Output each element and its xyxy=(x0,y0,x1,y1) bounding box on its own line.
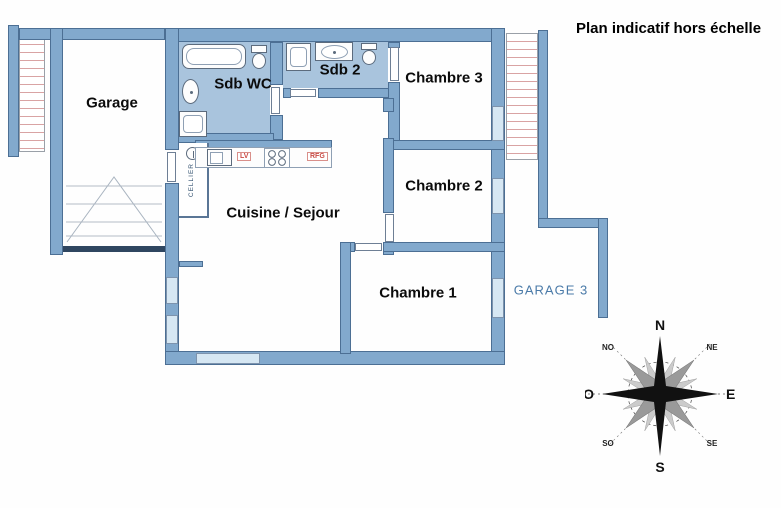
wall-segment xyxy=(318,88,395,98)
sdb-wc-label: Sdb WC xyxy=(214,76,272,93)
garage-door-line xyxy=(63,246,165,252)
washbasin-icon xyxy=(315,42,353,61)
wall-segment xyxy=(538,30,548,220)
compass-se-label: SE xyxy=(707,439,718,448)
compass-rose: N S E O NO NE SO SE xyxy=(585,312,735,480)
window xyxy=(196,353,260,364)
wall-segment xyxy=(388,140,505,150)
compass-e-label: E xyxy=(726,386,735,402)
stairs-right xyxy=(506,33,538,160)
wall-segment xyxy=(165,28,179,150)
wall-segment xyxy=(165,28,505,42)
window xyxy=(492,278,504,318)
washbasin-icon xyxy=(182,79,199,104)
toilet-icon xyxy=(249,45,269,71)
window xyxy=(492,106,504,141)
wall-segment xyxy=(8,25,19,157)
door-leaf xyxy=(167,152,176,182)
wall-segment xyxy=(179,261,203,267)
cuisine-sejour-label: Cuisine / Sejour xyxy=(226,205,339,222)
fridge-label: RFG xyxy=(307,152,328,161)
garage-3-label: GARAGE 3 xyxy=(514,283,588,298)
cellier-label: CELLIER xyxy=(188,163,195,197)
window xyxy=(492,178,504,214)
wall-segment xyxy=(50,28,63,255)
bathtub-icon xyxy=(182,44,246,69)
door-leaf xyxy=(290,89,316,97)
compass-ne-label: NE xyxy=(706,343,718,352)
compass-no-label: NO xyxy=(602,343,614,352)
garage-label: Garage xyxy=(86,95,138,112)
wall-segment xyxy=(19,28,165,40)
cooktop-icon xyxy=(264,148,290,168)
plan-note: Plan indicatif hors échelle xyxy=(576,20,761,37)
door-leaf xyxy=(271,87,280,114)
kitchen-sink-icon xyxy=(207,149,232,166)
sdb-2-label: Sdb 2 xyxy=(320,62,361,79)
stairs-left xyxy=(19,28,45,152)
chambre-3-label: Chambre 3 xyxy=(405,70,483,87)
compass-o-label: O xyxy=(585,386,594,402)
compass-so-label: SO xyxy=(602,439,614,448)
floor-plan: CELLIER LV xyxy=(0,0,781,508)
chambre-1-label: Chambre 1 xyxy=(379,285,457,302)
shower-icon xyxy=(286,43,311,71)
door-leaf xyxy=(385,214,394,242)
compass-n-label: N xyxy=(655,317,665,333)
compass-cardinal-points xyxy=(602,336,718,456)
chambre-2-label: Chambre 2 xyxy=(405,178,483,195)
wall-segment xyxy=(383,242,505,252)
wall-segment xyxy=(383,138,394,213)
door-leaf xyxy=(390,47,399,81)
wall-segment xyxy=(388,82,400,145)
compass-s-label: S xyxy=(655,459,664,475)
dishwasher-label: LV xyxy=(237,152,251,161)
wall-segment xyxy=(598,218,608,318)
window xyxy=(166,315,178,344)
toilet-icon xyxy=(359,43,379,67)
shower-icon xyxy=(179,111,207,137)
garage-door-icon xyxy=(64,172,164,246)
wall-segment xyxy=(383,98,394,112)
wall-segment xyxy=(340,242,351,354)
window xyxy=(166,277,178,304)
door-leaf xyxy=(355,243,382,251)
